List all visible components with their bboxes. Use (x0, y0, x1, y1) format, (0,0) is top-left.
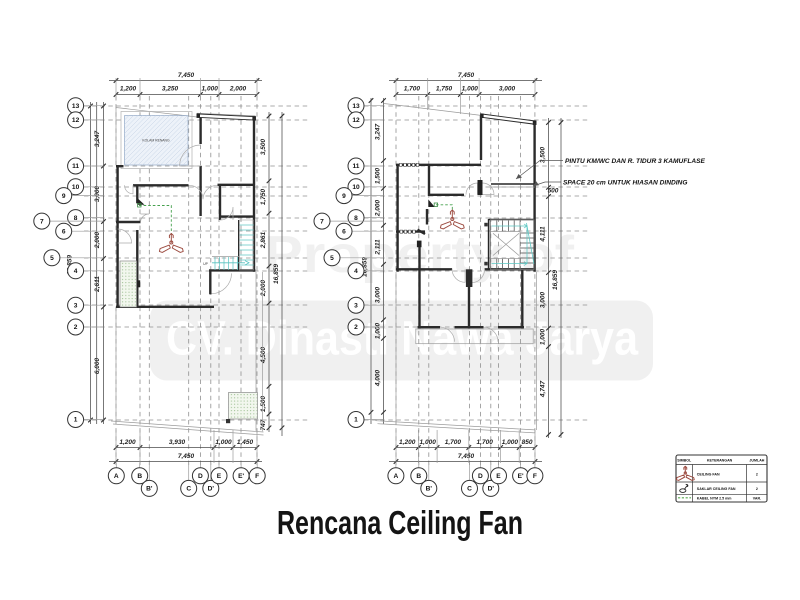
svg-text:12: 12 (72, 117, 80, 124)
svg-text:6: 6 (342, 228, 346, 235)
svg-text:D': D' (208, 486, 215, 493)
svg-text:1,200: 1,200 (399, 439, 416, 446)
svg-text:4: 4 (354, 268, 358, 275)
svg-text:2,861: 2,861 (260, 231, 267, 249)
svg-text:1,000: 1,000 (215, 439, 232, 446)
svg-text:E: E (217, 473, 222, 480)
svg-text:C: C (467, 486, 472, 493)
svg-text:KABEL NYM 2.5 mm: KABEL NYM 2.5 mm (697, 497, 732, 501)
svg-text:2,000: 2,000 (94, 231, 101, 249)
svg-text:1: 1 (354, 417, 358, 424)
svg-text:F: F (533, 473, 537, 480)
svg-text:B: B (137, 473, 142, 480)
svg-text:CEILING FAN: CEILING FAN (697, 473, 720, 477)
svg-text:E: E (496, 473, 501, 480)
svg-text:4: 4 (74, 268, 78, 275)
svg-text:Rencana Ceiling Fan: Rencana Ceiling Fan (277, 504, 523, 541)
svg-text:4,500: 4,500 (260, 346, 267, 364)
svg-text:2: 2 (756, 487, 758, 491)
svg-text:1,500: 1,500 (375, 167, 382, 184)
svg-text:4,111: 4,111 (540, 226, 547, 243)
svg-text:B': B' (146, 486, 153, 493)
svg-text:1,700: 1,700 (477, 439, 494, 446)
svg-text:CV. Dinasti Nawa Jarya: CV. Dinasti Nawa Jarya (166, 313, 638, 366)
svg-text:1,000: 1,000 (202, 86, 219, 93)
svg-text:4,000: 4,000 (375, 369, 382, 387)
svg-text:3,000: 3,000 (94, 185, 101, 202)
svg-text:SPACE 20 cm UNTUK HIASAN DINDI: SPACE 20 cm UNTUK HIASAN DINDING (563, 180, 687, 187)
svg-text:1,200: 1,200 (119, 439, 136, 446)
svg-text:1,450: 1,450 (237, 439, 254, 446)
svg-text:10: 10 (72, 184, 80, 191)
svg-text:B': B' (426, 486, 433, 493)
svg-text:13: 13 (72, 103, 80, 110)
svg-text:2,000: 2,000 (229, 86, 247, 93)
svg-text:1,200: 1,200 (120, 86, 137, 93)
svg-text:PINTU KM/WC DAN R. TIDUR 3 KAM: PINTU KM/WC DAN R. TIDUR 3 KAMUFLASE (565, 158, 706, 165)
svg-text:7: 7 (40, 218, 44, 225)
svg-text:1,000: 1,000 (540, 328, 547, 345)
svg-text:2,000: 2,000 (375, 199, 382, 217)
svg-text:1: 1 (74, 417, 78, 424)
svg-text:2,611: 2,611 (94, 276, 101, 293)
svg-text:3,000: 3,000 (375, 286, 382, 303)
svg-text:A: A (114, 473, 119, 480)
svg-text:850: 850 (522, 439, 533, 446)
svg-text:1,000: 1,000 (462, 86, 479, 93)
svg-text:A: A (394, 473, 399, 480)
svg-text:3: 3 (74, 302, 78, 309)
svg-text:11: 11 (353, 163, 360, 170)
svg-text:9: 9 (342, 193, 346, 200)
svg-text:1,750: 1,750 (436, 86, 453, 93)
svg-text:SAKLAR CEILING FAN: SAKLAR CEILING FAN (697, 487, 736, 491)
svg-text:5: 5 (50, 255, 54, 262)
svg-text:16,859: 16,859 (552, 270, 559, 290)
svg-text:6: 6 (62, 228, 66, 235)
svg-text:E': E' (238, 473, 244, 480)
svg-text:12: 12 (352, 117, 360, 124)
svg-text:D: D (198, 473, 203, 480)
svg-text:E': E' (518, 473, 524, 480)
svg-text:1,000: 1,000 (375, 322, 382, 339)
svg-text:2,000: 2,000 (260, 279, 267, 297)
svg-text:6,000: 6,000 (94, 357, 101, 374)
svg-text:7,450: 7,450 (458, 72, 475, 79)
svg-text:3,000: 3,000 (540, 291, 547, 308)
svg-text:JUMLAH: JUMLAH (749, 458, 764, 462)
svg-text:747: 747 (260, 419, 267, 430)
svg-text:9: 9 (62, 193, 66, 200)
svg-text:F: F (255, 473, 259, 480)
svg-text:3,250: 3,250 (162, 86, 179, 93)
svg-text:10: 10 (352, 184, 360, 191)
svg-text:3,500: 3,500 (260, 138, 267, 155)
svg-text:1,000: 1,000 (420, 439, 437, 446)
svg-text:11: 11 (72, 163, 79, 170)
svg-text:13: 13 (352, 103, 360, 110)
svg-text:3,000: 3,000 (499, 86, 516, 93)
svg-text:3,247: 3,247 (94, 130, 101, 147)
svg-text:D': D' (488, 486, 495, 493)
svg-text:3,930: 3,930 (169, 439, 186, 446)
svg-text:2: 2 (354, 324, 358, 331)
svg-text:SIMBOL: SIMBOL (677, 458, 692, 462)
svg-text:1,000: 1,000 (502, 439, 519, 446)
svg-text:500: 500 (548, 188, 559, 195)
svg-text:16,859: 16,859 (273, 264, 280, 284)
svg-text:C: C (186, 486, 191, 493)
svg-text:2: 2 (756, 473, 758, 477)
svg-text:KOLAM RENANG: KOLAM RENANG (142, 139, 170, 143)
svg-text:4,747: 4,747 (540, 380, 547, 398)
svg-text:2: 2 (74, 324, 78, 331)
svg-text:7,450: 7,450 (178, 453, 195, 460)
svg-text:7,450: 7,450 (458, 453, 475, 460)
svg-text:1,700: 1,700 (404, 86, 421, 93)
svg-text:VAR.: VAR. (753, 497, 761, 501)
svg-text:1,500: 1,500 (260, 395, 267, 412)
svg-text:3: 3 (354, 302, 358, 309)
svg-text:1,750: 1,750 (260, 188, 267, 205)
svg-text:7,450: 7,450 (178, 72, 195, 79)
svg-text:3,247: 3,247 (375, 123, 382, 140)
svg-text:5: 5 (330, 255, 334, 262)
svg-text:D: D (478, 473, 483, 480)
svg-text:1,700: 1,700 (445, 439, 462, 446)
svg-text:KETERANGAN: KETERANGAN (707, 458, 733, 462)
svg-text:2,111: 2,111 (375, 239, 382, 256)
svg-text:UP: UP (203, 262, 208, 266)
svg-text:7: 7 (320, 218, 324, 225)
svg-text:B: B (416, 473, 421, 480)
